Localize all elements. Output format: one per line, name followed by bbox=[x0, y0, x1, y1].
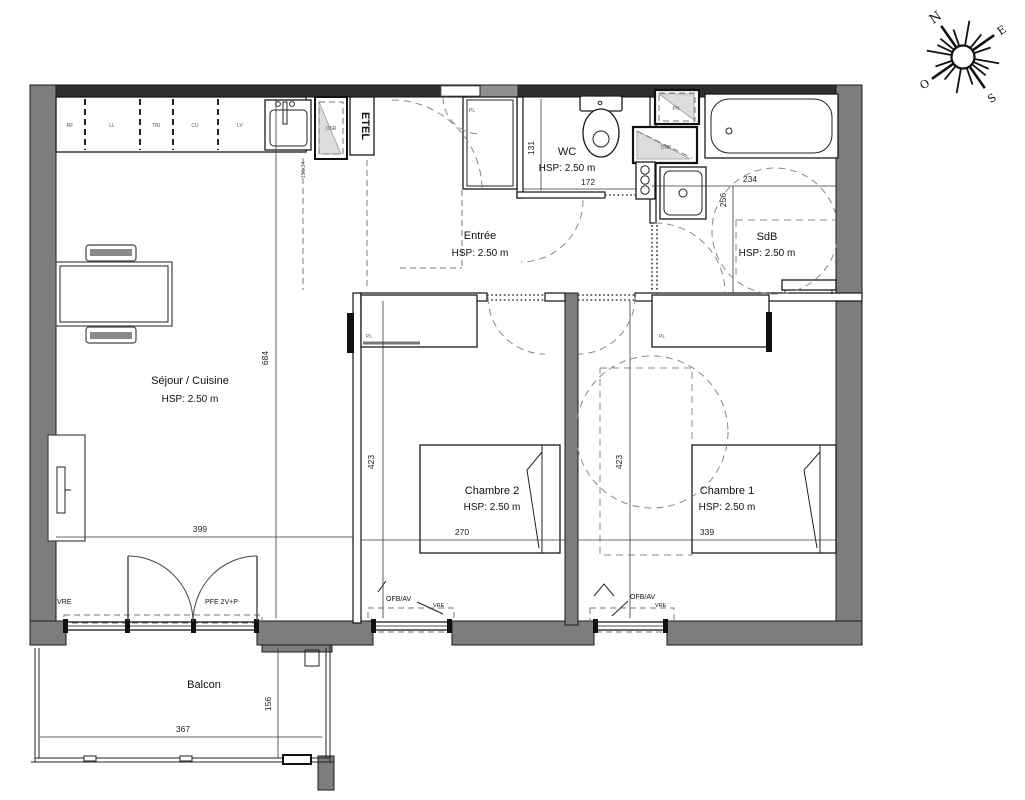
sdb-name: SdB bbox=[757, 231, 778, 243]
wardrobe-ch2: PL bbox=[347, 295, 477, 353]
bottom-wall-segment bbox=[257, 621, 373, 645]
frame-cap bbox=[254, 619, 259, 633]
ofb-label: OFB/AV bbox=[386, 596, 411, 603]
entree-closet: PL bbox=[463, 97, 517, 189]
duct-pn-label: PN bbox=[673, 106, 680, 112]
party-wall-bedrooms bbox=[565, 293, 578, 625]
frame-cap bbox=[663, 619, 668, 633]
duct-triangle: OSR bbox=[633, 127, 697, 163]
chambre1-name: Chambre 1 bbox=[700, 485, 754, 497]
wc-left-wall bbox=[517, 97, 523, 198]
chambre2-window: OFB/AV VRE bbox=[368, 596, 454, 633]
dim-wc-h: 131 bbox=[526, 141, 536, 155]
wc-hsp: HSP: 2.50 m bbox=[539, 163, 596, 174]
bedroom-wall-h2 bbox=[545, 293, 565, 301]
dim-ch1-h: 423 bbox=[614, 455, 624, 469]
toilet-bowl bbox=[583, 109, 619, 157]
dim-balcon-w: 367 bbox=[176, 724, 190, 734]
radiator-sdb bbox=[782, 280, 836, 294]
pfe-label: PFE 2V+P bbox=[205, 599, 238, 606]
chair-back bbox=[90, 332, 132, 339]
frame-cap bbox=[447, 619, 452, 633]
compass-west: O bbox=[917, 76, 932, 92]
vre-label: VRE bbox=[57, 599, 72, 606]
shutter-dashed bbox=[368, 608, 454, 632]
chambre1-room: PL Chambre 1 HSP: 2.50 m 423 339 bbox=[576, 295, 836, 618]
duct-square: PN bbox=[655, 90, 699, 124]
door-panel bbox=[347, 313, 354, 353]
top-wall-opening bbox=[441, 86, 480, 96]
dim-sejour-h: 684 bbox=[260, 351, 270, 365]
door-panel bbox=[766, 312, 772, 352]
chair-back bbox=[90, 249, 132, 256]
dining-table bbox=[56, 245, 172, 343]
balcon-area: Balcon 367 156 bbox=[31, 645, 334, 764]
sdb-door-swing bbox=[655, 223, 725, 293]
chambre2-hsp: HSP: 2.50 m bbox=[464, 502, 521, 513]
unit-label-lv: LV bbox=[237, 123, 243, 129]
ch1-door-swing bbox=[578, 297, 635, 354]
entree-room: PL Entrée HSP: 2.50 m bbox=[392, 97, 583, 262]
bed-outline bbox=[420, 445, 560, 553]
entry-door-leaf bbox=[480, 85, 518, 97]
duct-kitchen-label: OSR bbox=[326, 126, 337, 132]
right-wall bbox=[836, 85, 862, 645]
wardrobe-box bbox=[652, 295, 769, 347]
shutter-dashed bbox=[590, 608, 674, 632]
floor-plan-svg: RF LL TRI CU LV OSR ETEL bbox=[0, 0, 1025, 800]
kitchen-area: RF LL TRI CU LV OSR ETEL bbox=[56, 97, 374, 159]
compass-center bbox=[947, 41, 979, 73]
railing-post bbox=[180, 756, 192, 761]
chambre2-name: Chambre 2 bbox=[465, 485, 519, 497]
wardrobe-ch1: PL bbox=[652, 295, 772, 352]
unit-label-tri: TRI bbox=[152, 123, 160, 129]
radiator-body bbox=[782, 280, 836, 290]
bathtub bbox=[705, 94, 838, 158]
compass-north: N bbox=[927, 9, 945, 28]
frame-cap bbox=[371, 619, 376, 633]
door-leaf-swing bbox=[193, 556, 257, 622]
vre-label: VRE bbox=[433, 603, 445, 609]
duct-osr-label: OSR bbox=[661, 145, 672, 151]
exterior-walls bbox=[30, 85, 862, 790]
balcony-divider-wall bbox=[262, 645, 332, 652]
railing-post bbox=[84, 756, 96, 761]
etel-cabinet: ETEL bbox=[350, 97, 374, 155]
bottom-wall-segment bbox=[667, 621, 862, 645]
vre-label: VRE bbox=[655, 603, 667, 609]
table-top bbox=[56, 262, 172, 326]
window-tilt-mark bbox=[594, 584, 614, 596]
unit-label-cu: CU bbox=[191, 123, 199, 129]
window-tilt-mark bbox=[378, 581, 386, 592]
dim-balcon-h: 156 bbox=[263, 697, 273, 711]
unit-label-ll: LL bbox=[109, 123, 115, 129]
dim-ch2-w: 270 bbox=[455, 527, 469, 537]
dim-ch1-w: 339 bbox=[700, 527, 714, 537]
ch2-door-swing bbox=[488, 297, 545, 354]
chambre2-room: PL Chambre 2 HSP: 2.50 m 423 270 bbox=[347, 295, 565, 618]
kitchen-duct: OSR bbox=[315, 97, 347, 159]
compass-south: S bbox=[985, 91, 999, 106]
etel-label: ETEL bbox=[359, 112, 371, 140]
closet-pl-label: PL bbox=[469, 108, 475, 114]
basin-outer bbox=[660, 167, 706, 219]
wc-door-swing bbox=[521, 200, 583, 262]
compass-rose: N E S O bbox=[889, 0, 1025, 133]
wardrobe-pl-label: PL bbox=[659, 334, 665, 340]
sejour-hsp: HSP: 2.50 m bbox=[162, 394, 219, 405]
tub-outer bbox=[705, 94, 838, 158]
washbasin bbox=[660, 167, 706, 219]
frame-cap bbox=[593, 619, 598, 633]
plumbing-stack bbox=[636, 162, 655, 199]
chambre1-hsp: HSP: 2.50 m bbox=[699, 502, 756, 513]
radiator-body bbox=[48, 435, 85, 541]
unit-label-rf: RF bbox=[67, 123, 74, 129]
chambre1-window: OFB/AV VRE bbox=[590, 594, 674, 633]
bottom-wall-segment bbox=[30, 621, 66, 645]
ofb-label: OFB/AV bbox=[630, 594, 655, 601]
sdb-hsp: HSP: 2.50 m bbox=[739, 248, 796, 259]
dim-wc-w: 172 bbox=[581, 177, 595, 187]
dim-ch2-h: 423 bbox=[366, 455, 376, 469]
sejour-chambre2-wall bbox=[353, 293, 361, 623]
kitchen-sink bbox=[265, 100, 311, 150]
window-note: 150x34 bbox=[301, 162, 307, 179]
wc-bottom-wall bbox=[517, 192, 605, 198]
entree-name: Entrée bbox=[464, 230, 496, 242]
wardrobe-box bbox=[361, 295, 477, 347]
compass-east: E bbox=[995, 23, 1009, 38]
radiator-sejour bbox=[48, 435, 85, 541]
door-leaf-swing bbox=[128, 556, 193, 622]
wardrobe-pl-label: PL bbox=[366, 334, 372, 340]
dim-sejour-w: 399 bbox=[193, 524, 207, 534]
sink-unit bbox=[265, 100, 311, 150]
left-wall bbox=[30, 85, 56, 645]
sejour-name: Séjour / Cuisine bbox=[151, 375, 229, 387]
threshold bbox=[283, 755, 311, 764]
entree-hsp: HSP: 2.50 m bbox=[452, 248, 509, 259]
sejour-french-window: VRE PFE 2V+P bbox=[57, 556, 262, 633]
frame-cap bbox=[125, 619, 130, 633]
wc-name: WC bbox=[558, 146, 576, 158]
stack-box bbox=[636, 162, 655, 199]
bed-ch2 bbox=[420, 445, 560, 553]
balcony-corner-wall bbox=[318, 756, 334, 790]
frame-cap bbox=[63, 619, 68, 633]
balcon-name: Balcon bbox=[187, 679, 221, 691]
dim-sdb-h: 256 bbox=[718, 193, 728, 207]
toilet bbox=[580, 96, 622, 157]
